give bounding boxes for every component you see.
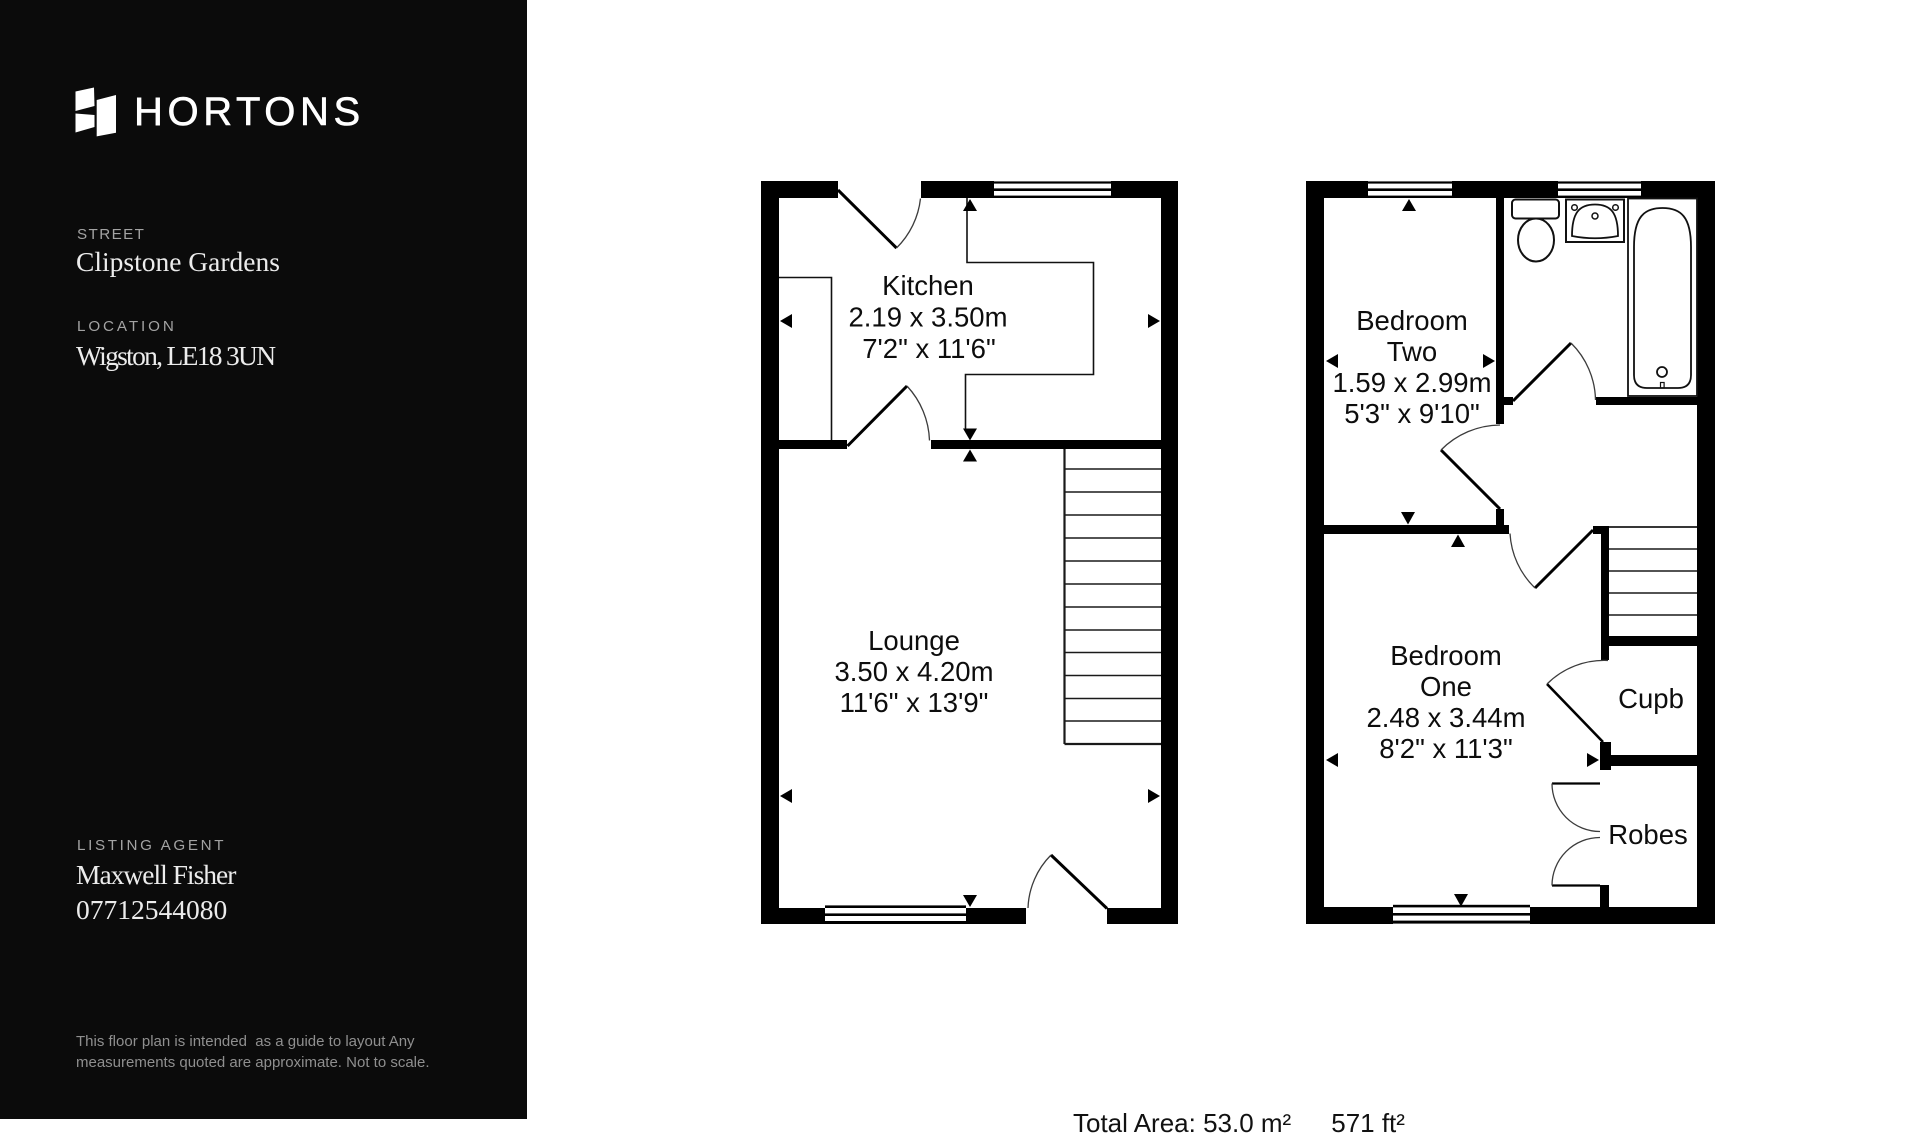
svg-text:2.48 x 3.44m: 2.48 x 3.44m	[1367, 702, 1526, 733]
svg-text:5'3" x 9'10": 5'3" x 9'10"	[1344, 398, 1480, 429]
svg-text:7'2" x 11'6": 7'2" x 11'6"	[862, 333, 996, 364]
svg-text:Two: Two	[1387, 336, 1437, 367]
svg-text:One: One	[1420, 671, 1472, 702]
svg-text:1.59 x 2.99m: 1.59 x 2.99m	[1333, 367, 1492, 398]
svg-text:8'2" x 11'3": 8'2" x 11'3"	[1379, 733, 1513, 764]
svg-text:3.50 x 4.20m: 3.50 x 4.20m	[835, 656, 994, 687]
svg-text:Cupb: Cupb	[1618, 683, 1684, 714]
svg-text:Kitchen: Kitchen	[882, 270, 974, 301]
svg-text:Robes: Robes	[1608, 819, 1688, 850]
svg-text:2.19 x 3.50m: 2.19 x 3.50m	[849, 302, 1008, 333]
svg-text:11'6" x 13'9": 11'6" x 13'9"	[840, 687, 989, 718]
svg-text:Bedroom: Bedroom	[1356, 305, 1468, 336]
svg-text:Lounge: Lounge	[868, 625, 960, 656]
svg-text:Bedroom: Bedroom	[1390, 640, 1502, 671]
